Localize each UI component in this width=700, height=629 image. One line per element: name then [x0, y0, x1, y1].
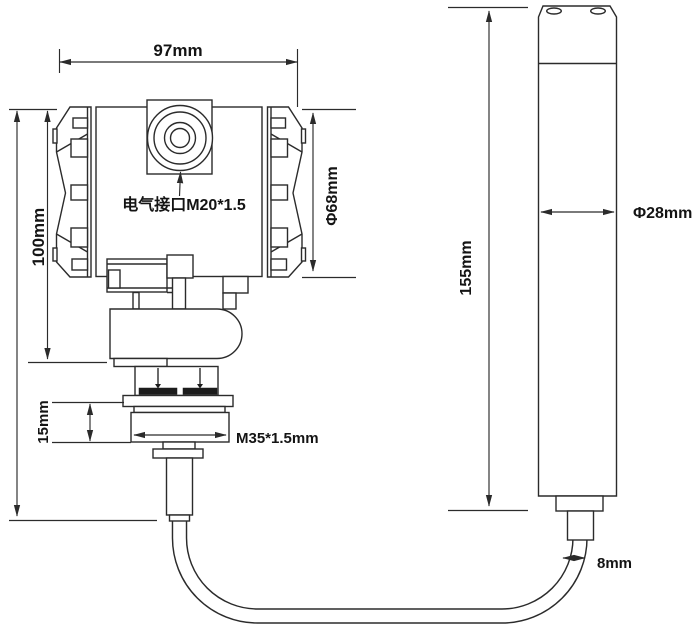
connection-cable: [180, 513, 581, 616]
housing-width-label: 97mm: [153, 41, 202, 60]
electrical-connector: [147, 100, 213, 174]
electrical-port-label: 电气接口M20*1.5: [122, 195, 246, 214]
thread-height-label: 15mm: [35, 400, 52, 443]
technical-drawing-canvas: 97mm 100mm Φ68mm 电气接口M20*1.5 15mm M35*1.…: [0, 0, 700, 629]
side-cover-left: [53, 107, 91, 277]
cable-diameter-label: 8mm: [597, 555, 632, 572]
probe-end-step: [556, 496, 603, 511]
bracket-junction-block: [167, 255, 193, 278]
probe-length-label: 155mm: [458, 240, 475, 295]
flange-washer: [134, 407, 225, 413]
housing-height-label: 100mm: [29, 208, 48, 267]
bracket-stem: [173, 278, 186, 309]
thread-spec-label: M35*1.5mm: [236, 430, 319, 447]
level-probe: [539, 6, 617, 540]
gland-neck: [163, 442, 195, 449]
probe-diameter-label: Φ28mm: [633, 205, 692, 222]
sensor-capsule: [110, 309, 242, 367]
dimension-housing-diameter: Φ68mm: [302, 110, 356, 278]
cable-gland-tip: [170, 515, 190, 521]
cable-gland: [167, 458, 193, 515]
housing-diameter-label: Φ68mm: [324, 166, 341, 225]
dimension-thread-height: 15mm: [35, 400, 131, 443]
transmitter-dimension-drawing: 97mm 100mm Φ68mm 电气接口M20*1.5 15mm M35*1.…: [0, 0, 700, 629]
dimension-housing-width: 97mm: [60, 41, 298, 107]
probe-body: [539, 6, 617, 496]
bolt-seal-section: [135, 367, 218, 396]
probe-cable-neck: [568, 511, 594, 540]
side-step-block: [223, 277, 248, 294]
side-cover-right: [268, 107, 306, 277]
gland-collar: [153, 449, 203, 458]
capsule-boss: [114, 359, 167, 367]
transmitter-housing: [53, 100, 306, 521]
process-flange: [123, 396, 233, 407]
hex-thread-block: [131, 413, 229, 443]
dimension-probe-length: 155mm: [448, 8, 528, 511]
